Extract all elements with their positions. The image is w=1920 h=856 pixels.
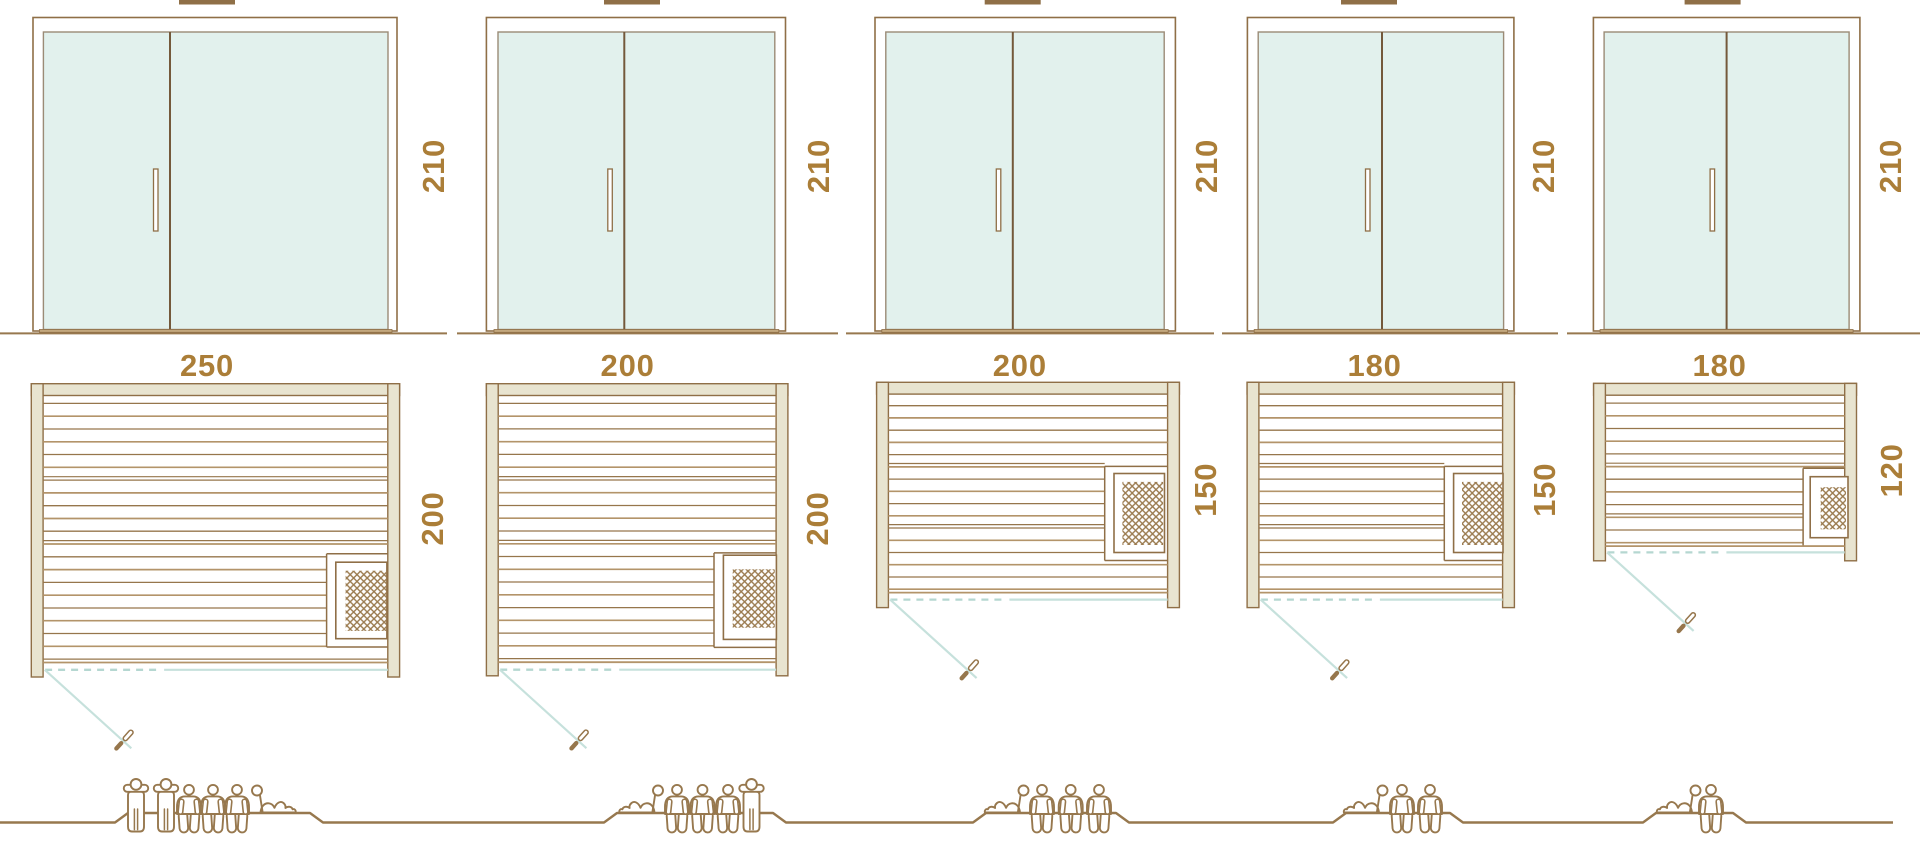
svg-text:180: 180 xyxy=(1348,348,1402,383)
svg-text:120: 120 xyxy=(1874,443,1909,497)
svg-text:210: 210 xyxy=(1873,139,1908,193)
svg-text:250: 250 xyxy=(180,348,234,383)
svg-text:210: 210 xyxy=(801,139,836,193)
svg-text:200: 200 xyxy=(800,491,835,545)
svg-text:150: 150 xyxy=(1527,463,1562,517)
svg-text:200: 200 xyxy=(993,348,1047,383)
svg-text:210: 210 xyxy=(1526,139,1561,193)
svg-text:210: 210 xyxy=(1189,139,1224,193)
svg-text:210: 210 xyxy=(416,139,451,193)
svg-text:200: 200 xyxy=(415,491,450,545)
svg-text:200: 200 xyxy=(601,348,655,383)
svg-text:180: 180 xyxy=(1693,348,1747,383)
svg-text:150: 150 xyxy=(1188,463,1223,517)
